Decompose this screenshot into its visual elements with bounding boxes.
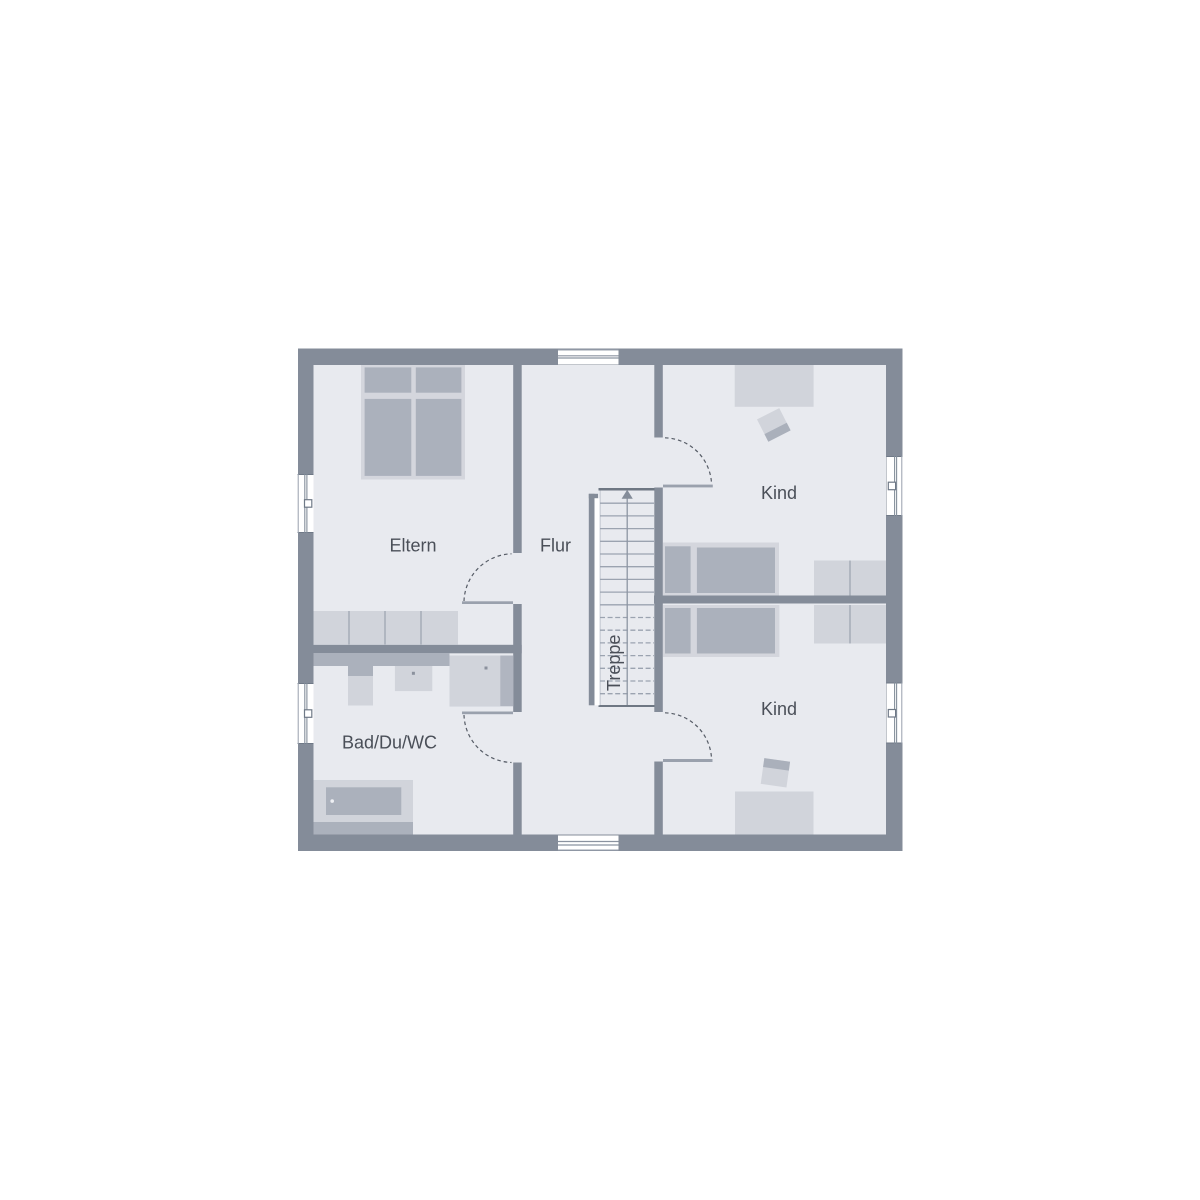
svg-text:Eltern: Eltern xyxy=(389,535,436,555)
svg-text:Kind: Kind xyxy=(761,699,797,719)
svg-text:Bad/Du/WC: Bad/Du/WC xyxy=(342,733,437,753)
svg-text:Treppe: Treppe xyxy=(604,635,624,691)
svg-text:Flur: Flur xyxy=(540,535,571,555)
svg-text:Kind: Kind xyxy=(761,483,797,503)
